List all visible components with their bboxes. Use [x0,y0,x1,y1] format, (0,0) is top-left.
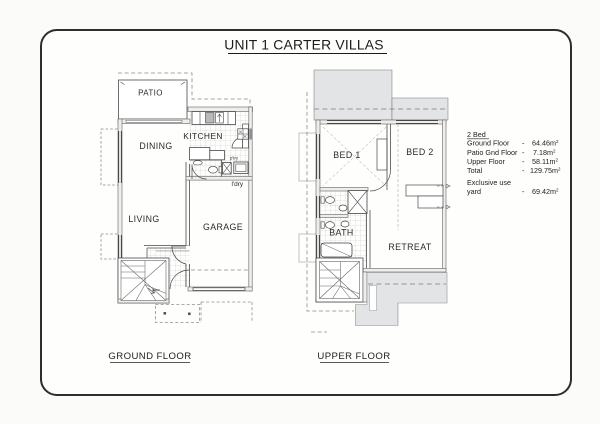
svg-text:Exclusive use: Exclusive use [467,178,511,187]
svg-text:BATH: BATH [329,228,353,238]
svg-text:l'dry: l'dry [231,181,243,188]
svg-text:KITCHEN: KITCHEN [183,131,223,141]
svg-text:BED 1: BED 1 [333,150,360,160]
svg-text:Ground Floor: Ground Floor [467,139,510,148]
svg-text:7.18m2: 7.18m2 [533,148,556,157]
svg-text:GROUND FLOOR: GROUND FLOOR [108,351,191,362]
svg-text:DINING: DINING [139,141,172,151]
svg-text:LIVING: LIVING [128,214,159,224]
svg-text:p'try: p'try [230,156,239,161]
svg-text:129.75m2: 129.75m2 [530,166,561,175]
svg-text:64.46m2: 64.46m2 [532,139,559,148]
svg-text:UNIT 1 CARTER VILLAS: UNIT 1 CARTER VILLAS [224,37,383,53]
svg-text:down: down [152,288,160,292]
svg-text:RETREAT: RETREAT [388,242,431,252]
svg-text:Total: Total [467,166,483,175]
svg-text:GARAGE: GARAGE [203,222,243,232]
svg-text:Patio Gnd Floor: Patio Gnd Floor [467,148,518,157]
svg-text:BED 2: BED 2 [406,147,433,157]
svg-text:PATIO: PATIO [138,89,163,98]
svg-text:69.42m2: 69.42m2 [532,187,559,196]
svg-text:yard: yard [467,187,481,196]
svg-text:UPPER FLOOR: UPPER FLOOR [317,351,390,362]
svg-text:58.11m2: 58.11m2 [532,157,558,166]
svg-text:Upper Floor: Upper Floor [467,157,506,166]
